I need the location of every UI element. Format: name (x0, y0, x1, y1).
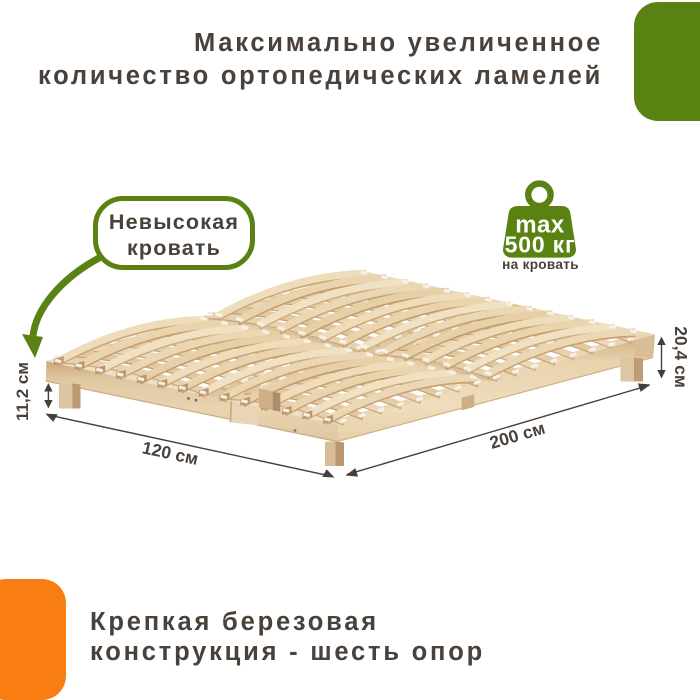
svg-text:20,4 см: 20,4 см (671, 326, 691, 388)
svg-text:200 см: 200 см (487, 418, 547, 453)
svg-text:11,2 см: 11,2 см (13, 362, 32, 421)
svg-text:120 см: 120 см (140, 437, 200, 469)
